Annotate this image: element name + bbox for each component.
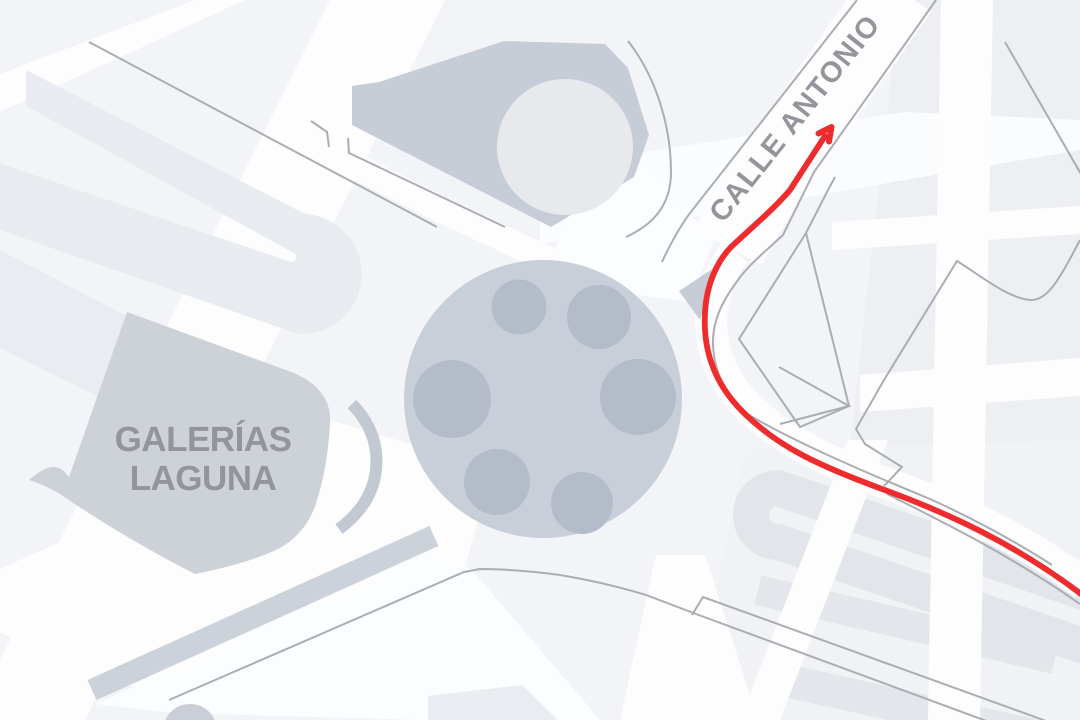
svg-text:LAGUNA: LAGUNA: [130, 459, 277, 498]
svg-text:GALERÍAS: GALERÍAS: [115, 419, 292, 459]
